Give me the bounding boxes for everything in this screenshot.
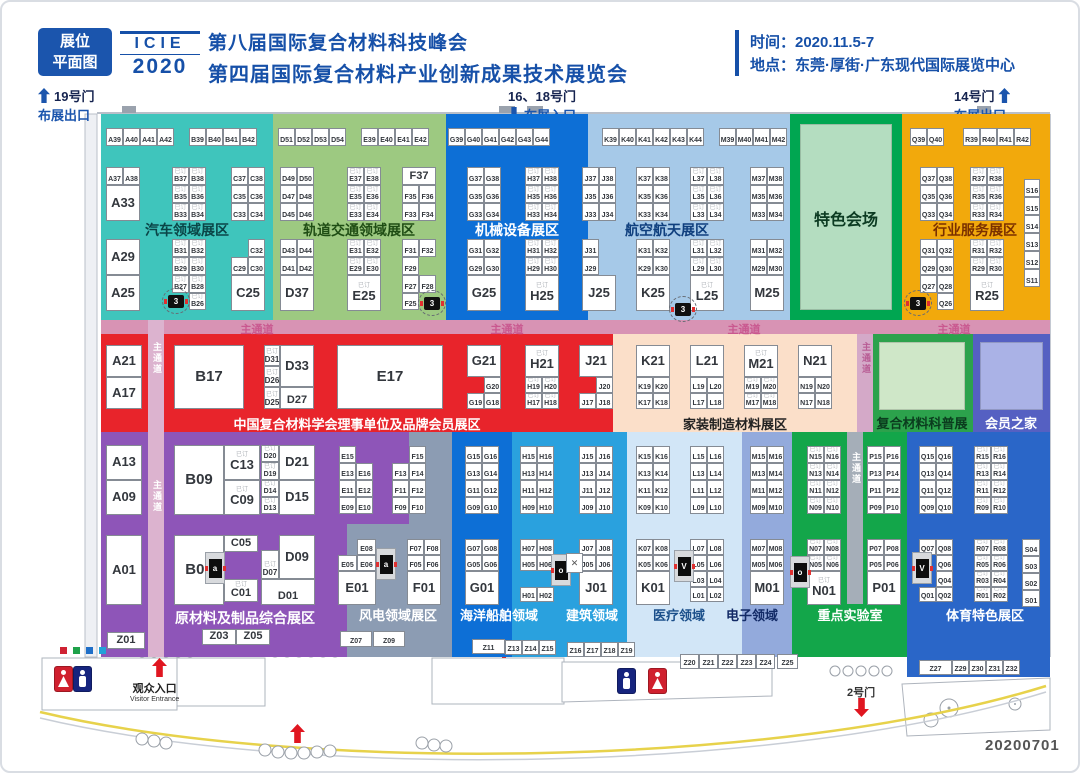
booth-H13[interactable]: H13 xyxy=(520,463,537,480)
booth-E01[interactable]: E01 xyxy=(338,571,376,605)
booth-F33[interactable]: F33 xyxy=(402,203,419,221)
booth-L32[interactable]: 已订L32 xyxy=(707,239,724,257)
booth-C30[interactable]: C30 xyxy=(248,257,265,275)
booth-K33[interactable]: K33 xyxy=(636,203,653,221)
booth-D43[interactable]: D43 xyxy=(280,239,297,257)
booth-G11[interactable]: G11 xyxy=(465,480,482,497)
booth-F35[interactable]: F35 xyxy=(402,185,419,203)
booth-H35[interactable]: 已订H35 xyxy=(525,185,542,203)
booth-M12[interactable]: M12 xyxy=(767,480,784,497)
booth-B36[interactable]: 已订B36 xyxy=(189,185,206,203)
booth-Q29[interactable]: Q29 xyxy=(920,257,937,275)
booth-G18[interactable]: G18 xyxy=(484,393,501,409)
booth-Q04[interactable]: Q04 xyxy=(936,571,953,587)
booth-A17[interactable]: A17 xyxy=(106,377,142,409)
booth-R41[interactable]: R41 xyxy=(997,128,1014,146)
booth-M25[interactable]: M25 xyxy=(750,275,784,311)
booth-E36[interactable]: 已订E36 xyxy=(364,185,381,203)
booth-E39[interactable]: E39 xyxy=(361,128,378,146)
booth-S15[interactable]: S15 xyxy=(1024,197,1040,215)
booth-A33[interactable]: A33 xyxy=(106,185,140,221)
booth-Z29[interactable]: Z29 xyxy=(952,660,969,675)
booth-P12[interactable]: P12 xyxy=(884,480,901,497)
main-aisle-vertical-lab[interactable]: 主通道 xyxy=(847,432,863,604)
booth-B29[interactable]: 已订B29 xyxy=(172,257,189,275)
booth-M14[interactable]: M14 xyxy=(767,463,784,480)
booth-L37[interactable]: 已订L37 xyxy=(690,167,707,185)
booth-G34[interactable]: G34 xyxy=(484,203,501,221)
booth-H33[interactable]: 已订H33 xyxy=(525,203,542,221)
booth-P01[interactable]: P01 xyxy=(867,571,901,605)
booth-B41[interactable]: B41 xyxy=(223,128,240,146)
booth-B33[interactable]: 已订B33 xyxy=(172,203,189,221)
booth-L31[interactable]: 已订L31 xyxy=(690,239,707,257)
booth-B30[interactable]: 已订B30 xyxy=(189,257,206,275)
booth-P06[interactable]: P06 xyxy=(884,555,901,571)
booth-K01[interactable]: K01 xyxy=(636,571,670,605)
booth-Q09[interactable]: Q09 xyxy=(919,497,936,514)
booth-F29[interactable]: F29 xyxy=(402,257,419,275)
booth-J29[interactable]: J29 xyxy=(582,257,599,275)
booth-F31[interactable]: F31 xyxy=(402,239,419,257)
booth-G10[interactable]: G10 xyxy=(482,497,499,514)
booth-L13[interactable]: L13 xyxy=(690,463,707,480)
booth-E38[interactable]: 已订E38 xyxy=(364,167,381,185)
booth-R42[interactable]: R42 xyxy=(1014,128,1031,146)
booth-P09[interactable]: P09 xyxy=(867,497,884,514)
booth-D45[interactable]: D45 xyxy=(280,203,297,221)
booth-Q31[interactable]: Q31 xyxy=(920,239,937,257)
booth-C05[interactable]: C05 xyxy=(224,535,258,552)
booth-L30[interactable]: 已订L30 xyxy=(707,257,724,275)
booth-Q13[interactable]: Q13 xyxy=(919,463,936,480)
booth-A09[interactable]: A09 xyxy=(106,480,142,515)
booth-Z32[interactable]: Z32 xyxy=(1003,660,1020,675)
booth-G20[interactable]: G20 xyxy=(484,377,501,393)
booth-G25[interactable]: G25 xyxy=(467,275,501,311)
booth-R05[interactable]: 已订R05 xyxy=(974,555,991,571)
booth-R06[interactable]: 已订R06 xyxy=(991,555,1008,571)
booth-E31[interactable]: 已订E31 xyxy=(347,239,364,257)
booth-M30[interactable]: M30 xyxy=(767,257,784,275)
booth-J37[interactable]: J37 xyxy=(582,167,599,185)
booth-A29[interactable]: A29 xyxy=(106,239,140,275)
booth-B09[interactable]: B09 xyxy=(174,445,224,515)
booth-H29[interactable]: 已订H29 xyxy=(525,257,542,275)
booth-L11[interactable]: L11 xyxy=(690,480,707,497)
booth-B31[interactable]: 已订B31 xyxy=(172,239,189,257)
booth-P07[interactable]: P07 xyxy=(867,539,884,555)
booth-S02[interactable]: S02 xyxy=(1022,573,1040,590)
booth-C25[interactable]: C25 xyxy=(231,275,265,311)
booth-Q32[interactable]: Q32 xyxy=(937,239,954,257)
booth-S04[interactable]: S04 xyxy=(1022,539,1040,556)
booth-N19[interactable]: N19 xyxy=(798,377,815,393)
booth-E32[interactable]: 已订E32 xyxy=(364,239,381,257)
booth-D51[interactable]: D51 xyxy=(278,128,295,146)
booth-Q37[interactable]: Q37 xyxy=(920,167,937,185)
booth-N17[interactable]: N17 xyxy=(798,393,815,409)
booth-K12[interactable]: K12 xyxy=(653,480,670,497)
booth-C34[interactable]: C34 xyxy=(248,203,265,221)
booth-N14[interactable]: 已订N14 xyxy=(824,463,841,480)
booth-E06[interactable]: E06 xyxy=(357,555,376,571)
booth-P08[interactable]: P08 xyxy=(884,539,901,555)
booth-D46[interactable]: D46 xyxy=(297,203,314,221)
booth-N18[interactable]: N18 xyxy=(815,393,832,409)
booth-R32[interactable]: 已订R32 xyxy=(987,239,1004,257)
booth-H15[interactable]: H15 xyxy=(520,446,537,463)
booth-G33[interactable]: G33 xyxy=(467,203,484,221)
booth-J36[interactable]: J36 xyxy=(599,185,616,203)
booth-C36[interactable]: C36 xyxy=(248,185,265,203)
booth-K44[interactable]: K44 xyxy=(687,128,704,146)
booth-H16[interactable]: H16 xyxy=(537,446,554,463)
booth-E12[interactable]: E12 xyxy=(356,480,373,497)
booth-B34[interactable]: 已订B34 xyxy=(189,203,206,221)
booth-Z09[interactable]: Z09 xyxy=(373,631,405,647)
booth-L06[interactable]: L06 xyxy=(707,555,724,571)
booth-F11[interactable]: F11 xyxy=(392,480,409,497)
booth-K32[interactable]: K32 xyxy=(653,239,670,257)
booth-D25[interactable]: 已订D25 xyxy=(264,387,280,409)
booth-H31[interactable]: 已订H31 xyxy=(525,239,542,257)
booth-M13[interactable]: M13 xyxy=(750,463,767,480)
booth-K09[interactable]: K09 xyxy=(636,497,653,514)
booth-G13[interactable]: G13 xyxy=(465,463,482,480)
booth-H12[interactable]: H12 xyxy=(537,480,554,497)
booth-M34[interactable]: M34 xyxy=(767,203,784,221)
booth-H18[interactable]: 已订H18 xyxy=(542,393,559,409)
booth-P11[interactable]: P11 xyxy=(867,480,884,497)
booth-G06[interactable]: G06 xyxy=(482,555,499,571)
booth-L35[interactable]: 已订L35 xyxy=(690,185,707,203)
booth-A39[interactable]: A39 xyxy=(106,128,123,146)
booth-L15[interactable]: L15 xyxy=(690,446,707,463)
booth-M16[interactable]: M16 xyxy=(767,446,784,463)
booth-A13[interactable]: A13 xyxy=(106,445,142,480)
booth-P14[interactable]: P14 xyxy=(884,463,901,480)
booth-K05[interactable]: K05 xyxy=(636,555,653,571)
booth-L36[interactable]: 已订L36 xyxy=(707,185,724,203)
booth-N13[interactable]: 已订N13 xyxy=(807,463,824,480)
booth-Q15[interactable]: Q15 xyxy=(919,446,936,463)
booth-Q16[interactable]: Q16 xyxy=(936,446,953,463)
booth-K40[interactable]: K40 xyxy=(619,128,636,146)
booth-Z22[interactable]: Z22 xyxy=(718,654,737,669)
booth-M41[interactable]: M41 xyxy=(753,128,770,146)
booth-G16[interactable]: G16 xyxy=(482,446,499,463)
booth-J12[interactable]: J12 xyxy=(596,480,613,497)
booth-K31[interactable]: K31 xyxy=(636,239,653,257)
booth-E17[interactable]: E17 xyxy=(337,345,443,409)
booth-R14[interactable]: 已订R14 xyxy=(991,463,1008,480)
booth-J31[interactable]: J31 xyxy=(582,239,599,257)
booth-N08[interactable]: 已订N08 xyxy=(824,539,841,555)
booth-D42[interactable]: D42 xyxy=(297,257,314,275)
booth-G36[interactable]: G36 xyxy=(484,185,501,203)
booth-H32[interactable]: 已订H32 xyxy=(542,239,559,257)
booth-M33[interactable]: M33 xyxy=(750,203,767,221)
booth-D44[interactable]: D44 xyxy=(297,239,314,257)
booth-D49[interactable]: D49 xyxy=(280,167,297,185)
booth-B39[interactable]: B39 xyxy=(189,128,206,146)
booth-E11[interactable]: E11 xyxy=(339,480,356,497)
booth-D01[interactable]: D01 xyxy=(261,579,315,605)
booth-M05[interactable]: M05 xyxy=(750,555,767,571)
booth-H09[interactable]: H09 xyxy=(520,497,537,514)
booth-H37[interactable]: 已订H37 xyxy=(525,167,542,185)
booth-Q38[interactable]: Q38 xyxy=(937,167,954,185)
booth-L18[interactable]: L18 xyxy=(707,393,724,409)
booth-M42[interactable]: M42 xyxy=(770,128,787,146)
booth-K30[interactable]: K30 xyxy=(653,257,670,275)
booth-D41[interactable]: D41 xyxy=(280,257,297,275)
booth-J20[interactable]: J20 xyxy=(596,377,613,393)
booth-L02[interactable]: L02 xyxy=(707,587,724,602)
booth-Z30[interactable]: Z30 xyxy=(969,660,986,675)
booth-C37[interactable]: C37 xyxy=(231,167,248,185)
booth-G19[interactable]: G19 xyxy=(467,393,484,409)
booth-A37[interactable]: A37 xyxy=(106,167,123,185)
booth-G01[interactable]: G01 xyxy=(465,571,499,605)
booth-R29[interactable]: 已订R29 xyxy=(970,257,987,275)
booth-N07[interactable]: 已订N07 xyxy=(807,539,824,555)
booth-Q26[interactable]: Q26 xyxy=(937,293,954,310)
booth-G21[interactable]: G21 xyxy=(467,345,501,377)
booth-C33[interactable]: C33 xyxy=(231,203,248,221)
booth-G44[interactable]: G44 xyxy=(533,128,550,146)
main-aisle-vertical-left[interactable]: 主通道 主通道 xyxy=(148,320,164,657)
booth-R15[interactable]: 已订R15 xyxy=(974,446,991,463)
booth-Z13[interactable]: Z13 xyxy=(505,640,522,655)
booth-E30[interactable]: 已订E30 xyxy=(364,257,381,275)
booth-Q11[interactable]: Q11 xyxy=(919,480,936,497)
booth-R25[interactable]: 已订R25 xyxy=(970,275,1004,311)
booth-K39[interactable]: K39 xyxy=(602,128,619,146)
booth-B26[interactable]: 已订B26 xyxy=(189,293,206,310)
booth-R02[interactable]: 已订R02 xyxy=(991,587,1008,602)
booth-Q01[interactable]: Q01 xyxy=(919,587,936,602)
booth-Q28[interactable]: Q28 xyxy=(937,275,954,293)
booth-M20[interactable]: 已订M20 xyxy=(761,377,778,393)
booth-R09[interactable]: 已订R09 xyxy=(974,497,991,514)
booth-S11[interactable]: S11 xyxy=(1024,269,1040,287)
booth-Q33[interactable]: Q33 xyxy=(920,203,937,221)
booth-M15[interactable]: M15 xyxy=(750,446,767,463)
booth-J11[interactable]: J11 xyxy=(579,480,596,497)
booth-M29[interactable]: M29 xyxy=(750,257,767,275)
booth-L20[interactable]: L20 xyxy=(707,377,724,393)
booth-K42[interactable]: K42 xyxy=(653,128,670,146)
booth-Q14[interactable]: Q14 xyxy=(936,463,953,480)
booth-G08[interactable]: G08 xyxy=(482,539,499,555)
booth-J14[interactable]: J14 xyxy=(596,463,613,480)
booth-Z05[interactable]: Z05 xyxy=(236,629,270,645)
booth-J33[interactable]: J33 xyxy=(582,203,599,221)
booth-L34[interactable]: 已订L34 xyxy=(707,203,724,221)
booth-E08[interactable]: E08 xyxy=(357,539,376,555)
booth-N16[interactable]: 已订N16 xyxy=(824,446,841,463)
booth-G39[interactable]: G39 xyxy=(448,128,465,146)
booth-A25[interactable]: A25 xyxy=(106,275,140,311)
booth-C01[interactable]: 已订C01 xyxy=(224,579,258,602)
booth-C32[interactable]: C32 xyxy=(248,239,265,257)
booth-D52[interactable]: D52 xyxy=(295,128,312,146)
booth-E09[interactable]: E09 xyxy=(339,497,356,514)
booth-Z19[interactable]: Z19 xyxy=(618,642,635,657)
booth-J13[interactable]: J13 xyxy=(579,463,596,480)
booth-Q02[interactable]: Q02 xyxy=(936,587,953,602)
booth-N21[interactable]: N21 xyxy=(798,345,832,377)
booth-B38[interactable]: 已订B38 xyxy=(189,167,206,185)
booth-K17[interactable]: K17 xyxy=(636,393,653,409)
booth-C13[interactable]: 已订C13 xyxy=(224,445,260,480)
booth-F08[interactable]: F08 xyxy=(424,539,441,555)
booth-H36[interactable]: 已订H36 xyxy=(542,185,559,203)
booth-M21[interactable]: 已订M21 xyxy=(744,345,778,377)
booth-Z21[interactable]: Z21 xyxy=(699,654,718,669)
booth-K10[interactable]: K10 xyxy=(653,497,670,514)
booth-D13[interactable]: 已订D13 xyxy=(261,497,279,514)
booth-L14[interactable]: L14 xyxy=(707,463,724,480)
booth-P10[interactable]: P10 xyxy=(884,497,901,514)
booth-R35[interactable]: 已订R35 xyxy=(970,185,987,203)
booth-C38[interactable]: C38 xyxy=(248,167,265,185)
booth-G07[interactable]: G07 xyxy=(465,539,482,555)
booth-H11[interactable]: H11 xyxy=(520,480,537,497)
booth-M07[interactable]: M07 xyxy=(750,539,767,555)
booth-L10[interactable]: L10 xyxy=(707,497,724,514)
booth-B40[interactable]: B40 xyxy=(206,128,223,146)
booth-B17[interactable]: B17 xyxy=(174,345,244,409)
booth-P16[interactable]: P16 xyxy=(884,446,901,463)
booth-Z20[interactable]: Z20 xyxy=(680,654,699,669)
booth-L19[interactable]: L19 xyxy=(690,377,707,393)
booth-L01[interactable]: L01 xyxy=(690,587,707,602)
booth-C35[interactable]: C35 xyxy=(231,185,248,203)
booth-G41[interactable]: G41 xyxy=(482,128,499,146)
booth-M38[interactable]: M38 xyxy=(767,167,784,185)
booth-M36[interactable]: M36 xyxy=(767,185,784,203)
booth-J06[interactable]: J06 xyxy=(596,555,613,571)
booth-J21[interactable]: J21 xyxy=(579,345,613,377)
booth-Q34[interactable]: Q34 xyxy=(937,203,954,221)
booth-D07[interactable]: 已订D07 xyxy=(261,550,279,579)
booth-A41[interactable]: A41 xyxy=(140,128,157,146)
booth-D48[interactable]: D48 xyxy=(297,185,314,203)
booth-D47[interactable]: D47 xyxy=(280,185,297,203)
booth-K18[interactable]: K18 xyxy=(653,393,670,409)
booth-N06[interactable]: 已订N06 xyxy=(824,555,841,571)
booth-Q12[interactable]: Q12 xyxy=(936,480,953,497)
booth-K06[interactable]: K06 xyxy=(653,555,670,571)
booth-E10[interactable]: E10 xyxy=(356,497,373,514)
booth-N15[interactable]: 已订N15 xyxy=(807,446,824,463)
booth-G37[interactable]: G37 xyxy=(467,167,484,185)
booth-J08[interactable]: J08 xyxy=(596,539,613,555)
booth-F36[interactable]: F36 xyxy=(419,185,436,203)
booth-E41[interactable]: E41 xyxy=(395,128,412,146)
booth-R04[interactable]: 已订R04 xyxy=(991,571,1008,587)
booth-B42[interactable]: B42 xyxy=(240,128,257,146)
booth-J18[interactable]: J18 xyxy=(596,393,613,409)
booth-R30[interactable]: 已订R30 xyxy=(987,257,1004,275)
booth-F34[interactable]: F34 xyxy=(419,203,436,221)
booth-L21[interactable]: L21 xyxy=(690,345,724,377)
booth-E05[interactable]: E05 xyxy=(338,555,357,571)
booth-D37[interactable]: D37 xyxy=(280,275,314,311)
booth-H34[interactable]: 已订H34 xyxy=(542,203,559,221)
booth-N01[interactable]: 已订N01 xyxy=(807,571,841,605)
booth-D14[interactable]: 已订D14 xyxy=(261,480,279,497)
booth-H02[interactable]: H02 xyxy=(537,587,554,602)
booth-Q08[interactable]: Q08 xyxy=(936,539,953,555)
booth-P15[interactable]: P15 xyxy=(867,446,884,463)
booth-H10[interactable]: H10 xyxy=(537,497,554,514)
booth-D21[interactable]: D21 xyxy=(279,445,315,480)
booth-E15[interactable]: E15 xyxy=(339,446,356,463)
booth-J16[interactable]: J16 xyxy=(596,446,613,463)
booth-J01[interactable]: J01 xyxy=(579,571,613,605)
booth-Z18[interactable]: Z18 xyxy=(601,642,618,657)
booth-J09[interactable]: J09 xyxy=(579,497,596,514)
booth-J38[interactable]: J38 xyxy=(599,167,616,185)
booth-K15[interactable]: K15 xyxy=(636,446,653,463)
booth-Z27[interactable]: Z27 xyxy=(919,660,952,675)
booth-K38[interactable]: K38 xyxy=(653,167,670,185)
booth-D53[interactable]: D53 xyxy=(312,128,329,146)
booth-G29[interactable]: G29 xyxy=(467,257,484,275)
booth-H07[interactable]: H07 xyxy=(520,539,537,555)
booth-K14[interactable]: K14 xyxy=(653,463,670,480)
booth-J10[interactable]: J10 xyxy=(596,497,613,514)
booth-D26[interactable]: 已订D26 xyxy=(264,366,280,387)
booth-G32[interactable]: G32 xyxy=(484,239,501,257)
booth-A01[interactable]: A01 xyxy=(106,535,142,605)
booth-G43[interactable]: G43 xyxy=(516,128,533,146)
booth-J34[interactable]: J34 xyxy=(599,203,616,221)
booth-R08[interactable]: 已订R08 xyxy=(991,539,1008,555)
booth-F07[interactable]: F07 xyxy=(407,539,424,555)
booth-D09[interactable]: D09 xyxy=(279,535,315,579)
booth-Z11[interactable]: Z11 xyxy=(472,639,505,654)
booth-F13[interactable]: F13 xyxy=(392,463,409,480)
booth-Z16[interactable]: Z16 xyxy=(567,642,584,657)
booth-M37[interactable]: M37 xyxy=(750,167,767,185)
booth-L29[interactable]: 已订L29 xyxy=(690,257,707,275)
booth-E33[interactable]: 已订E33 xyxy=(347,203,364,221)
booth-F37[interactable]: F37 xyxy=(402,167,436,185)
booth-R07[interactable]: 已订R07 xyxy=(974,539,991,555)
booth-E37[interactable]: 已订E37 xyxy=(347,167,364,185)
booth-M32[interactable]: M32 xyxy=(767,239,784,257)
booth-D31[interactable]: 已订D31 xyxy=(264,345,280,366)
booth-R34[interactable]: 已订R34 xyxy=(987,203,1004,221)
booth-R40[interactable]: R40 xyxy=(980,128,997,146)
booth-N11[interactable]: 已订N11 xyxy=(807,480,824,497)
booth-L12[interactable]: L12 xyxy=(707,480,724,497)
booth-L38[interactable]: 已订L38 xyxy=(707,167,724,185)
booth-D50[interactable]: D50 xyxy=(297,167,314,185)
booth-E34[interactable]: 已订E34 xyxy=(364,203,381,221)
booth-F27[interactable]: F27 xyxy=(402,275,419,293)
booth-E29[interactable]: 已订E29 xyxy=(347,257,364,275)
booth-J35[interactable]: J35 xyxy=(582,185,599,203)
booth-M19[interactable]: 已订M19 xyxy=(744,377,761,393)
booth-M11[interactable]: M11 xyxy=(750,480,767,497)
booth-F15[interactable]: F15 xyxy=(409,446,426,463)
